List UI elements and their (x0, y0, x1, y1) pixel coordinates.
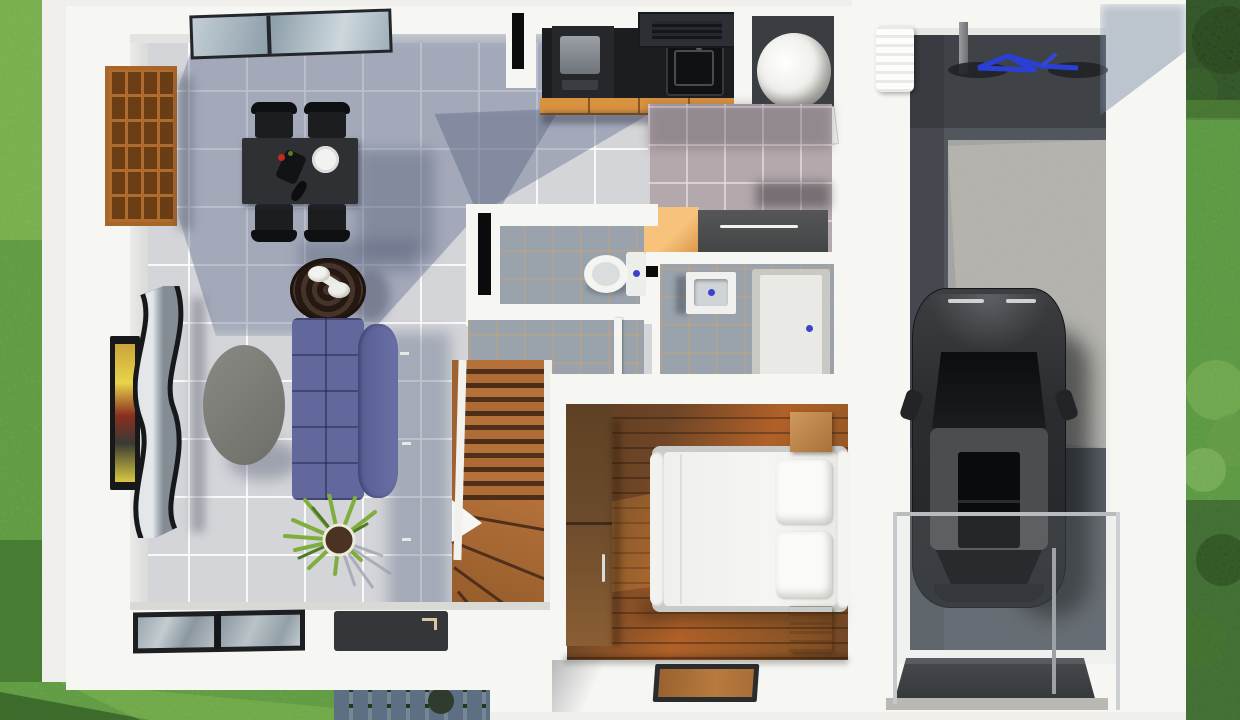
hood-trim (948, 299, 984, 303)
porch-doormat (653, 664, 760, 702)
washbasin (686, 272, 736, 314)
partition-door-slot (512, 13, 524, 69)
windshield (932, 352, 1046, 428)
dining-chair (304, 204, 350, 242)
toilet-seat (592, 262, 620, 286)
railing-glass-edge (1116, 512, 1120, 710)
garage-threshold (886, 698, 1108, 710)
tv-screen (115, 344, 135, 482)
cobblestone-path (334, 686, 490, 720)
cobble-dark-stone (428, 688, 454, 714)
plant-pot (324, 525, 354, 555)
floor-plan-render (0, 0, 1240, 720)
railing-post (893, 512, 897, 704)
doormat-corner-glyph (422, 618, 437, 630)
sofa-foot (400, 352, 409, 355)
shower-tray-inner (760, 275, 822, 375)
skylight-mullion (267, 16, 272, 54)
bike-frame (978, 56, 1078, 70)
wc-door-slot (478, 213, 491, 295)
bottom-wall-inner-face (130, 602, 552, 610)
railing-inner-post (1052, 548, 1056, 694)
bookshelf (105, 66, 177, 226)
window-pane (138, 616, 214, 648)
teapot-berry (278, 154, 285, 161)
nightstand (790, 412, 832, 452)
garage-top-wall-face (910, 28, 1106, 35)
nightstand (790, 606, 832, 652)
pillow (776, 532, 832, 598)
stair-step (462, 388, 546, 402)
cooktop (552, 26, 614, 98)
oval-coffee-table (203, 345, 285, 465)
sofa-foot (402, 442, 411, 445)
sideboard-handle (720, 225, 798, 228)
railing-glass (895, 514, 1118, 664)
stair-step (462, 458, 546, 472)
toilet (584, 250, 646, 298)
hood-grill (652, 21, 722, 39)
cooktop-knobs (562, 80, 598, 90)
plate (312, 146, 339, 173)
stair-step (462, 360, 546, 374)
wardrobe-handle (602, 554, 605, 582)
hood-trim (1006, 299, 1036, 303)
ac-unit (876, 26, 914, 92)
water-heater-cylinder (757, 33, 831, 109)
cup (328, 282, 350, 298)
left-lawn (0, 0, 42, 720)
cup (308, 266, 330, 282)
round-tray-table (290, 258, 366, 322)
kitchen-sink (666, 40, 724, 96)
dining-table (242, 138, 358, 204)
stair-step (462, 402, 546, 416)
shower-drain (806, 325, 813, 332)
bicycle (944, 40, 1112, 86)
flush-button (633, 270, 640, 277)
sink-basin (674, 50, 714, 86)
bedroom-wardrobe (566, 404, 612, 646)
stair-step (462, 416, 546, 430)
stair-step (462, 430, 546, 444)
stair-step (462, 486, 546, 500)
basin-drain (708, 289, 715, 296)
bedroom-left-wall (550, 404, 567, 660)
teapot-leaf (288, 151, 293, 156)
window-mullion (215, 614, 221, 649)
double-bed (650, 444, 850, 614)
dining-chair (251, 102, 297, 138)
skylight-window (189, 8, 392, 59)
range-hood (638, 12, 736, 48)
railing-top-rail (893, 512, 1120, 516)
bed-headboard (834, 450, 850, 608)
window-pane (221, 615, 300, 647)
right-garden (1186, 0, 1240, 720)
sliding-window (133, 609, 305, 653)
shower-tray (752, 269, 830, 383)
stair-step (462, 444, 546, 458)
potted-plant (283, 494, 397, 592)
dining-chair (251, 204, 297, 242)
dining-chair (304, 102, 350, 138)
cooktop-appliance (560, 36, 600, 74)
sofa-foot (402, 538, 411, 541)
pillow (776, 460, 832, 524)
stair-step (462, 374, 546, 388)
entry-doormat (334, 611, 448, 651)
sofa-seats (292, 318, 364, 500)
tv-console-wavy (133, 286, 195, 538)
driveway-mat (894, 658, 1096, 702)
stair-step (462, 472, 546, 486)
sofa-chaise (358, 324, 398, 498)
